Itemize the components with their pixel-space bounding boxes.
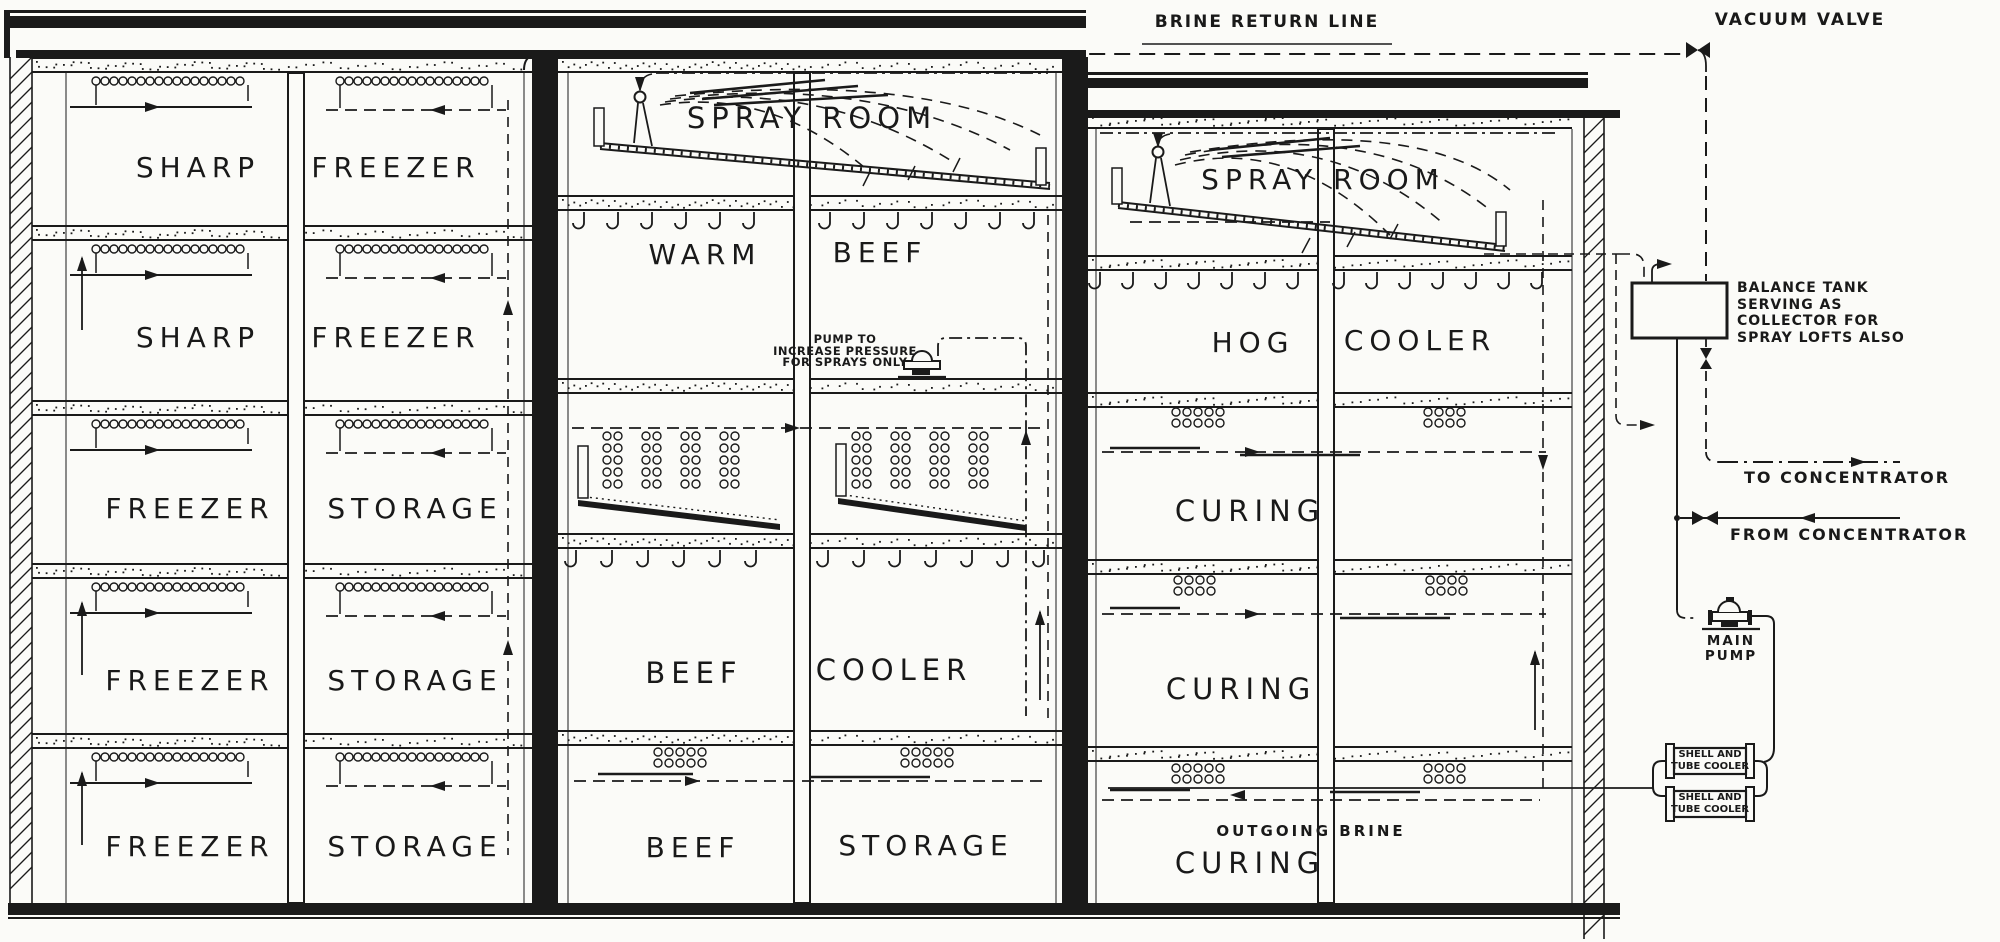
main-pump-symbol: [1677, 597, 1774, 762]
room-label-spray-room-middle: SPRAY ROOM: [687, 103, 937, 133]
room-label-warm: WARM: [649, 240, 762, 269]
outgoing-brine-label: OUTGOING BRINE: [1216, 824, 1405, 840]
balance-tank-note-line2: SERVING AS: [1737, 297, 1905, 314]
room-label-beef-f4: BEEF: [645, 658, 742, 688]
vacuum-valve-symbol: [1686, 42, 1710, 281]
pump-note-line3: FOR SPRAYS ONLY: [773, 357, 917, 369]
room-label-spray-room-right: SPRAY ROOM: [1201, 165, 1445, 194]
cooler-top-line1: SHELL AND: [1671, 749, 1749, 761]
room-label-freezer-f2: FREEZER: [311, 323, 480, 352]
main-pump-label-line1: MAIN: [1705, 634, 1757, 649]
room-label-sharp-f2: SHARP: [136, 323, 260, 352]
room-label-sharp-f1: SHARP: [136, 153, 260, 182]
balance-tank-note-line1: BALANCE TANK: [1737, 280, 1905, 297]
room-label-freezer-f5: FREEZER: [105, 832, 274, 861]
room-label-beef-f5: BEEF: [646, 833, 741, 862]
coil-loft-stacks-and-clusters: [603, 408, 1467, 783]
pump-note: PUMP TO INCREASE PRESSURE FOR SPRAYS ONL…: [773, 334, 917, 369]
cooler-bottom-line1: SHELL AND: [1671, 792, 1749, 804]
balance-tank-note-line4: SPRAY LOFTS ALSO: [1737, 330, 1905, 347]
room-label-storage-f5: STORAGE: [327, 832, 502, 861]
room-label-beef-f2: BEEF: [833, 238, 928, 267]
refrigeration-cross-section-diagram: BRINE RETURN LINE VACUUM VALVE SHARP FRE…: [0, 0, 2000, 942]
balance-tank-note: BALANCE TANK SERVING AS COLLECTOR FOR SP…: [1737, 280, 1905, 346]
room-label-hog: HOG: [1212, 328, 1295, 357]
cooler-top-line2: TUBE COOLER: [1671, 761, 1749, 773]
to-concentrator-label: TO CONCENTRATOR: [1744, 470, 1950, 487]
main-pump-label: MAIN PUMP: [1705, 634, 1757, 664]
from-concentrator-label: FROM CONCENTRATOR: [1730, 527, 1968, 544]
shell-tube-cooler-top-label: SHELL AND TUBE COOLER: [1671, 749, 1749, 773]
room-label-storage-f4: STORAGE: [327, 666, 502, 695]
cooler-bottom-line2: TUBE COOLER: [1671, 804, 1749, 816]
brine-return-dashed-lines: [326, 110, 1546, 800]
room-label-curing-f3: CURING: [1175, 496, 1325, 526]
room-label-cooler-right: COOLER: [1344, 326, 1496, 355]
room-label-freezer-f1: FREEZER: [311, 153, 480, 182]
room-label-cooler-f4: COOLER: [816, 655, 973, 685]
room-label-freezer-f3: FREEZER: [105, 494, 274, 523]
room-label-curing-f4: CURING: [1166, 674, 1316, 704]
main-pump-label-line2: PUMP: [1705, 649, 1757, 664]
balance-tank-note-line3: COLLECTOR FOR: [1737, 313, 1905, 330]
vacuum-valve-label: VACUUM VALVE: [1715, 12, 1886, 30]
room-label-storage-f3: STORAGE: [327, 494, 502, 523]
room-label-freezer-f4: FREEZER: [105, 666, 274, 695]
room-label-storage-middle-f5: STORAGE: [838, 831, 1013, 860]
balance-tank: [1484, 254, 1727, 425]
room-label-curing-f5: CURING: [1175, 848, 1325, 878]
brine-return-line-label: BRINE RETURN LINE: [1155, 14, 1379, 32]
spray-nozzles: [634, 74, 1170, 206]
shell-tube-cooler-bottom-label: SHELL AND TUBE COOLER: [1671, 792, 1749, 816]
